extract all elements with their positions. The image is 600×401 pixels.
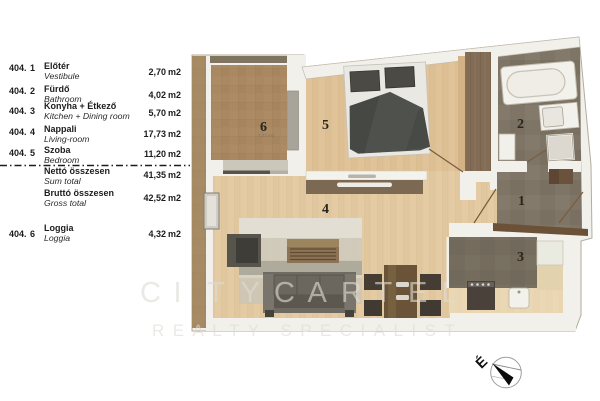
svg-text:5: 5 (322, 118, 329, 133)
svg-text:T: T (207, 277, 225, 309)
svg-text:4,32 m2: 4,32 m2 (258, 133, 275, 138)
svg-text:3: 3 (517, 250, 524, 265)
svg-text:C: C (274, 277, 295, 309)
svg-text:R: R (341, 277, 362, 309)
svg-text:I: I (174, 277, 182, 309)
svg-text:4: 4 (322, 202, 329, 217)
svg-text:É: É (472, 353, 491, 372)
svg-text:Y: Y (241, 277, 260, 309)
svg-text:A: A (308, 277, 328, 309)
svg-text:1: 1 (518, 194, 525, 209)
svg-text:T: T (375, 277, 393, 309)
svg-text:REALTY SPECIALIST: REALTY SPECIALIST (152, 321, 463, 340)
svg-text:2: 2 (517, 117, 524, 132)
svg-text:L: L (442, 277, 458, 309)
svg-text:C: C (140, 277, 161, 309)
svg-text:E: E (408, 277, 427, 309)
